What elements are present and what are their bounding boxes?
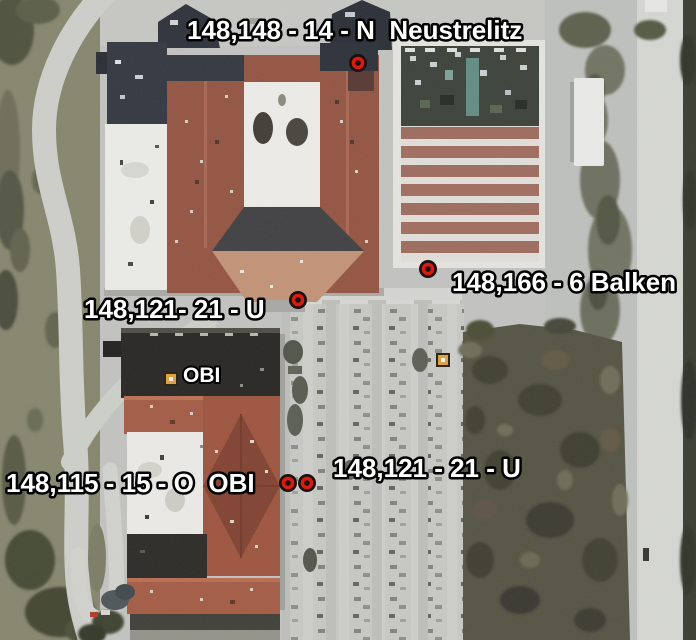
red-dot-marker-neustrelitz[interactable]: [349, 54, 367, 72]
placemark-label-obi[interactable]: 148,115 - 15 - O OBI: [6, 468, 255, 498]
aerial-photo: 148,148 - 14 - N Neustrelitz 148,166 - 6…: [0, 0, 696, 640]
red-dot-marker-u-upper[interactable]: [289, 291, 307, 309]
placemark-label-u-lower[interactable]: 148,121 - 21 - U: [333, 453, 521, 483]
aerial-map-view: 148,148 - 14 - N Neustrelitz 148,166 - 6…: [0, 0, 696, 640]
red-dot-marker-obi-left[interactable]: [279, 474, 297, 492]
orange-square-marker-obi[interactable]: [164, 372, 178, 386]
placemark-label-balken[interactable]: 148,166 - 6 Balken: [452, 267, 676, 297]
placemark-label-obi-small[interactable]: OBI: [183, 364, 220, 387]
placemark-label-neustrelitz[interactable]: 148,148 - 14 - N Neustrelitz: [187, 15, 522, 45]
red-dot-marker-balken[interactable]: [419, 260, 437, 278]
placemark-label-u-upper[interactable]: 148,121- 21 - U: [84, 294, 265, 324]
orange-square-marker-unlabeled[interactable]: [436, 353, 450, 367]
red-dot-marker-obi-right[interactable]: [298, 474, 316, 492]
